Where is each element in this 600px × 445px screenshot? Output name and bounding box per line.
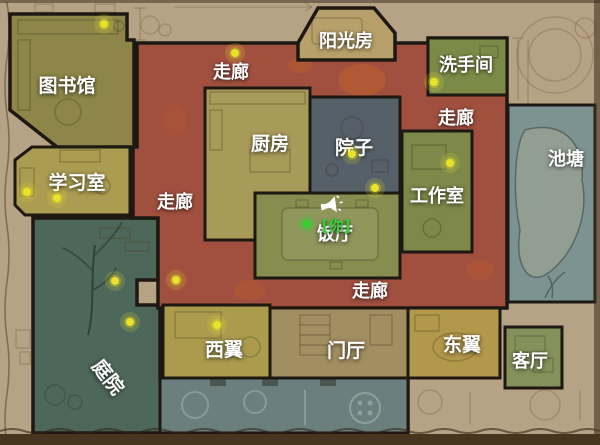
room-label-hall: 门厅 [327,339,365,362]
room-label-east-wing: 东翼 [443,333,481,356]
room-label-living-room: 客厅 [512,350,548,372]
collectible-dot-8 [446,159,454,167]
room-label-pond: 池塘 [548,148,584,170]
collectible-dot-6 [348,150,356,158]
room-label-bathroom: 洗手间 [439,54,493,76]
collectible-dot-9 [111,277,119,285]
room-label-corridor-bottom: 走廊 [352,280,388,302]
collectible-dot-10 [126,318,134,326]
collectible-dot-3 [430,78,438,86]
collectible-dot-1 [100,20,108,28]
room-label-sunroom: 阳光房 [319,30,373,52]
region-terrace [160,378,408,433]
room-label-library: 图书馆 [38,74,95,97]
room-label-corridor-right: 走廊 [438,107,474,129]
player-marker: [你] [298,215,350,235]
collectible-dot-2 [231,49,239,57]
room-label-west-wing: 西翼 [205,339,243,361]
player-dot [303,220,312,229]
room-label-corridor-left: 走廊 [157,191,193,213]
collectible-dot-11 [172,276,180,284]
collectible-dot-4 [23,188,31,196]
collectible-dot-7 [371,184,379,192]
room-label-kitchen: 厨房 [251,132,289,155]
collectible-dot-5 [53,194,61,202]
player-location-label: [你] [322,217,351,235]
room-label-workshop: 工作室 [410,185,464,207]
game-map-screen: 图书馆学习室阳光房洗手间走廊走廊走廊走廊厨房院子工作室饭厅池塘庭院西翼门厅东翼客… [0,0,600,445]
room-label-corridor-top: 走廊 [213,61,249,83]
collectible-dot-12 [213,321,221,329]
